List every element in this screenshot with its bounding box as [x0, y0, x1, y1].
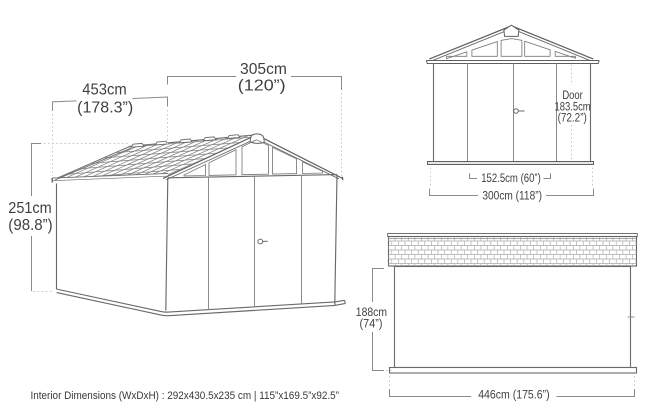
svg-text:(74”): (74”) — [360, 319, 383, 331]
svg-text:(98.8”): (98.8”) — [8, 217, 52, 234]
svg-text:453cm: 453cm — [82, 82, 126, 99]
svg-text:(120”): (120”) — [238, 77, 286, 94]
svg-text:305cm: 305cm — [240, 61, 287, 78]
svg-text:152.5cm (60”): 152.5cm (60”) — [481, 173, 541, 185]
svg-text:446cm (175.6”): 446cm (175.6”) — [478, 389, 550, 401]
svg-text:251cm: 251cm — [8, 200, 51, 217]
svg-text:Interior Dimensions (WxDxH) :: Interior Dimensions (WxDxH) : 292x430.5x… — [31, 390, 340, 402]
svg-text:Door: Door — [562, 90, 583, 102]
svg-text:(178.3”): (178.3”) — [77, 100, 133, 117]
svg-text:188cm: 188cm — [356, 307, 387, 319]
svg-text:300cm (118”): 300cm (118”) — [482, 190, 542, 202]
svg-text:(72.2”): (72.2”) — [558, 113, 587, 125]
